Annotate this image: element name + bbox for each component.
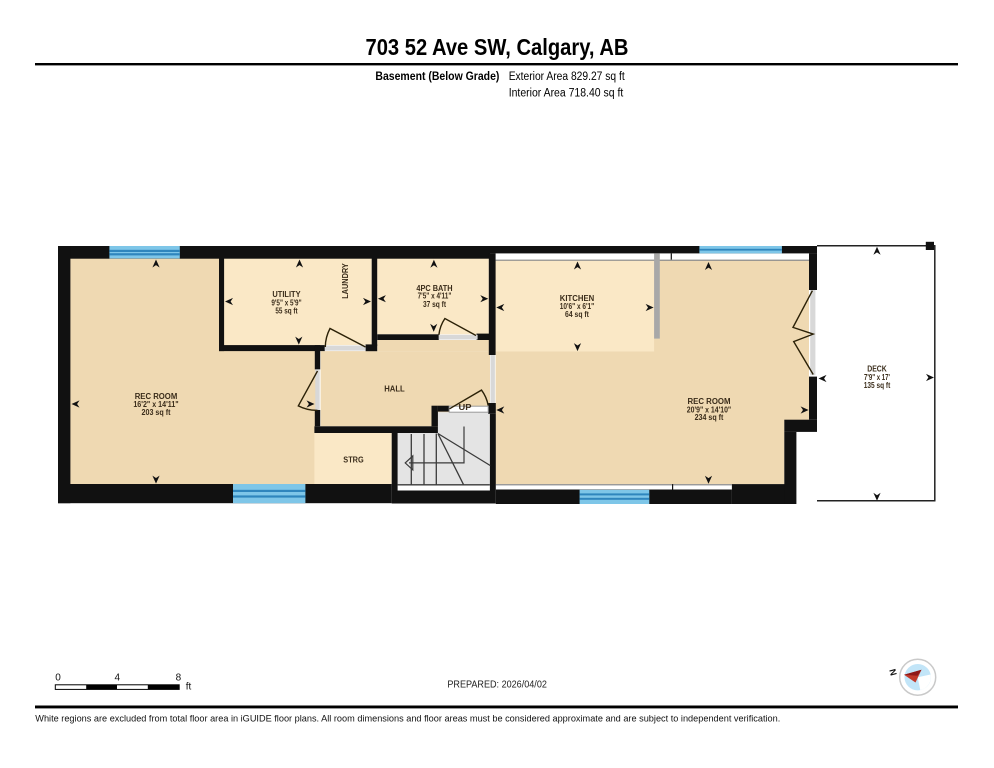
svg-text:55 sq ft: 55 sq ft [275, 305, 297, 315]
svg-text:64 sq ft: 64 sq ft [565, 309, 589, 319]
svg-text:37 sq ft: 37 sq ft [423, 299, 446, 309]
svg-text:203 sq ft: 203 sq ft [142, 407, 171, 417]
svg-text:234 sq ft: 234 sq ft [695, 412, 724, 422]
svg-text:PREPARED: 2026/04/02: PREPARED: 2026/04/02 [447, 680, 547, 691]
svg-text:0: 0 [55, 673, 61, 684]
svg-text:ft: ft [186, 682, 192, 693]
svg-text:LAUNDRY: LAUNDRY [340, 263, 350, 299]
svg-text:Exterior Area 829.27 sq ft: Exterior Area 829.27 sq ft [509, 71, 626, 83]
svg-text:Interior Area 718.40 sq ft: Interior Area 718.40 sq ft [509, 87, 624, 99]
svg-text:135 sq ft: 135 sq ft [864, 380, 891, 390]
svg-text:703 52 Ave SW, Calgary, AB: 703 52 Ave SW, Calgary, AB [366, 34, 629, 60]
svg-text:HALL: HALL [384, 384, 405, 394]
svg-text:8: 8 [176, 673, 182, 684]
svg-text:UP: UP [459, 402, 472, 412]
svg-text:White regions are excluded fro: White regions are excluded from total fl… [35, 713, 780, 723]
svg-text:4: 4 [115, 673, 121, 684]
svg-text:STRG: STRG [343, 455, 364, 465]
svg-text:Basement (Below Grade): Basement (Below Grade) [375, 71, 499, 83]
